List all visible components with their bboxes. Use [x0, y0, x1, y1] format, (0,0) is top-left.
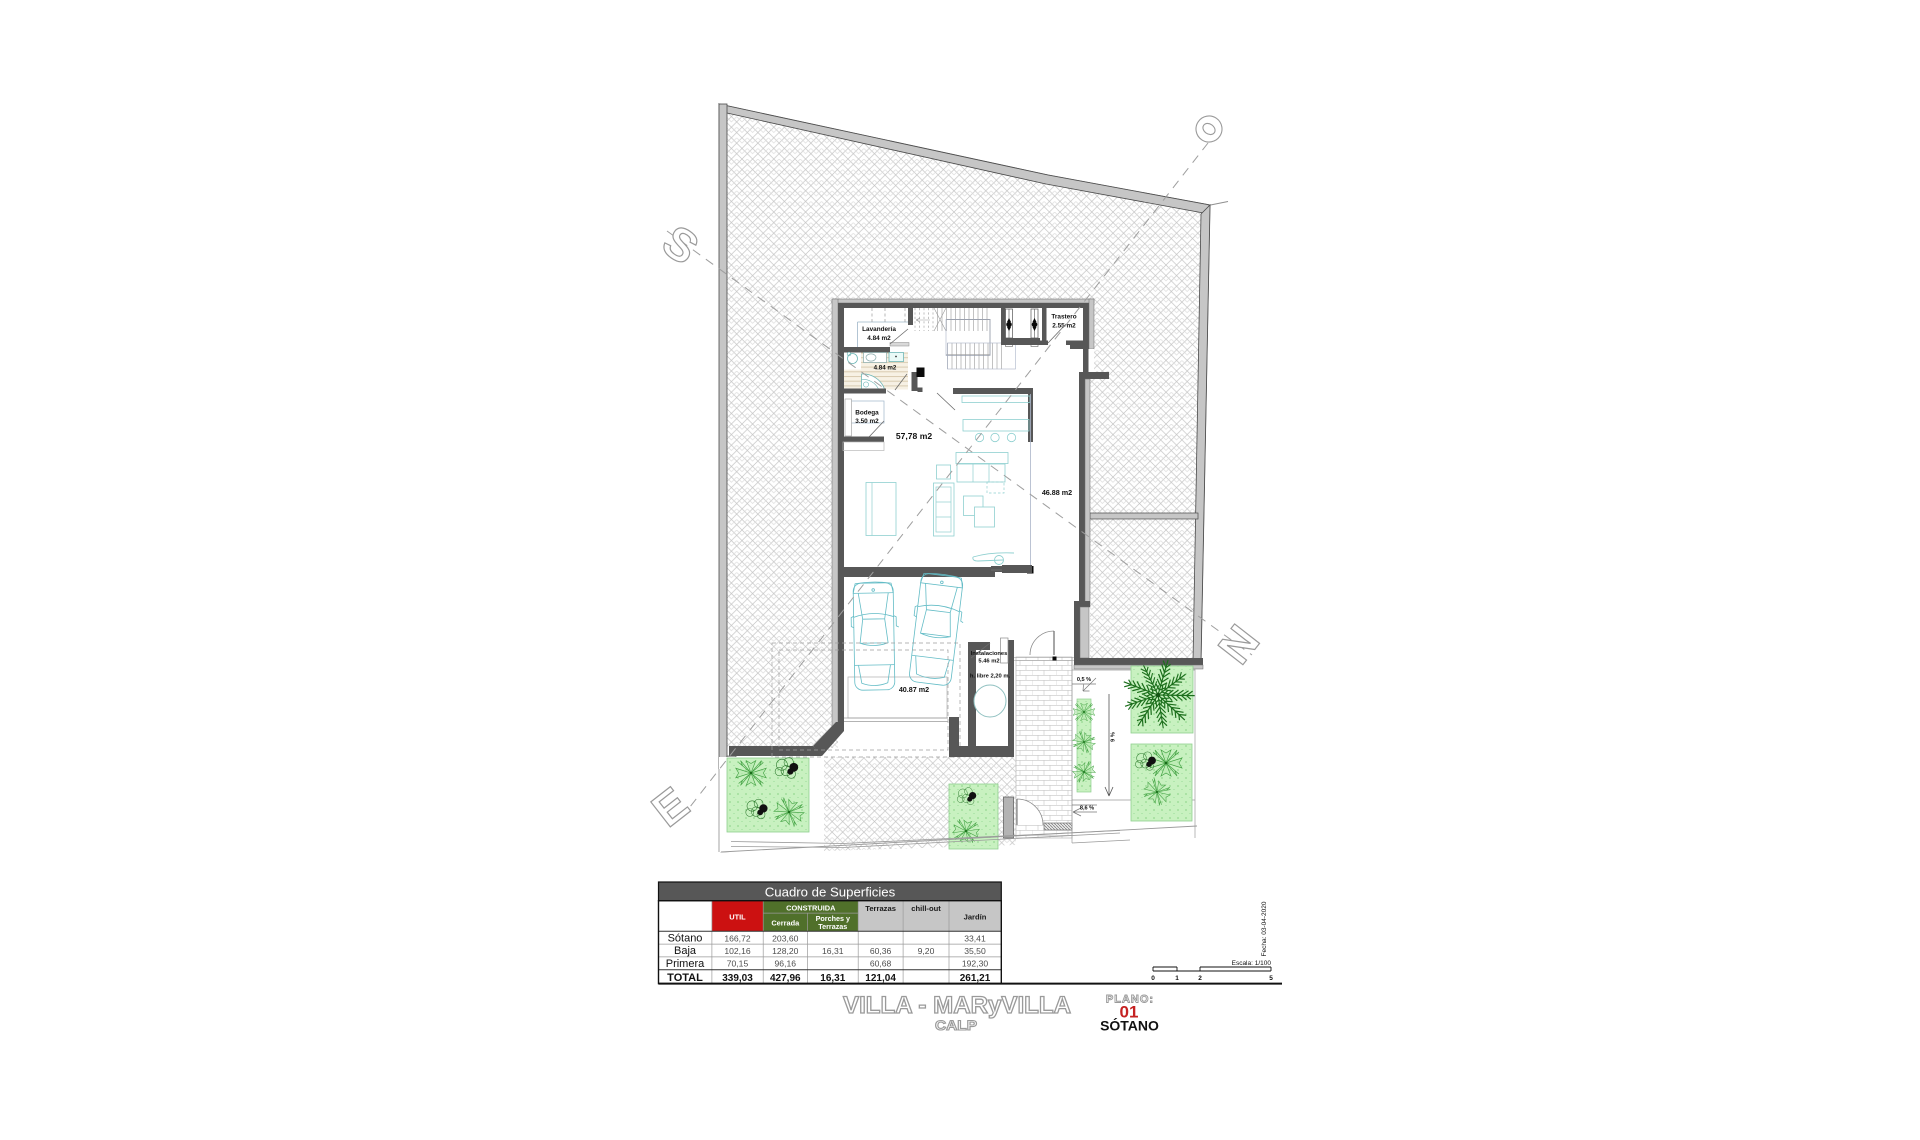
- svg-text:chill-out: chill-out: [911, 904, 941, 913]
- svg-text:46.88 m2: 46.88 m2: [1042, 488, 1072, 497]
- svg-text:33,41: 33,41: [964, 933, 986, 943]
- svg-text:121,04: 121,04: [865, 973, 896, 984]
- svg-text:h. libre 2,20 m.: h. libre 2,20 m.: [970, 674, 1011, 680]
- svg-text:Bodega: Bodega: [855, 410, 879, 417]
- svg-text:427,96: 427,96: [770, 973, 801, 984]
- svg-text:Trastero: Trastero: [1051, 314, 1076, 321]
- svg-text:203,60: 203,60: [772, 933, 799, 943]
- svg-text:Instalaciones: Instalaciones: [971, 651, 1008, 657]
- svg-text:0,5 %: 0,5 %: [1077, 677, 1091, 683]
- svg-text:9 %: 9 %: [1111, 732, 1117, 742]
- svg-text:192,30: 192,30: [962, 959, 989, 969]
- svg-text:70,15: 70,15: [727, 959, 749, 969]
- svg-text:Lavandería: Lavandería: [862, 326, 896, 333]
- svg-text:CALP: CALP: [935, 1017, 977, 1033]
- svg-text:UTIL: UTIL: [729, 913, 746, 922]
- svg-text:Cerrada: Cerrada: [771, 919, 800, 928]
- svg-text:Terrazas: Terrazas: [818, 922, 847, 931]
- svg-text:5.46 m2: 5.46 m2: [978, 659, 999, 665]
- svg-text:60,36: 60,36: [870, 946, 892, 956]
- svg-text:TOTAL: TOTAL: [667, 972, 703, 984]
- svg-text:VILLA - MARyVILLA: VILLA - MARyVILLA: [843, 992, 1071, 1019]
- svg-text:0: 0: [1151, 975, 1155, 982]
- svg-text:3.50 m2: 3.50 m2: [855, 418, 879, 425]
- svg-text:57,78 m2: 57,78 m2: [896, 431, 933, 441]
- svg-text:2: 2: [1198, 975, 1202, 982]
- svg-text:102,16: 102,16: [724, 946, 751, 956]
- svg-text:1: 1: [1175, 975, 1179, 982]
- svg-text:Cuadro de Superficies: Cuadro de Superficies: [765, 885, 896, 900]
- svg-text:40.87 m2: 40.87 m2: [899, 685, 929, 694]
- svg-text:CONSTRUIDA: CONSTRUIDA: [786, 904, 836, 913]
- svg-text:339,03: 339,03: [722, 973, 753, 984]
- svg-text:4.84 m2: 4.84 m2: [867, 335, 891, 342]
- svg-text:166,72: 166,72: [724, 933, 751, 943]
- svg-text:35,50: 35,50: [964, 946, 986, 956]
- svg-text:16,31: 16,31: [822, 946, 844, 956]
- svg-text:Jardín: Jardín: [964, 913, 987, 922]
- svg-text:4.84 m2: 4.84 m2: [874, 365, 897, 372]
- svg-text:16,31: 16,31: [820, 973, 845, 984]
- svg-text:128,20: 128,20: [772, 946, 799, 956]
- svg-text:SÓTANO: SÓTANO: [1100, 1017, 1159, 1034]
- svg-text:Fecha: 03-04-2020: Fecha: 03-04-2020: [1261, 901, 1268, 956]
- svg-text:Primera: Primera: [666, 958, 705, 970]
- svg-text:9,20: 9,20: [918, 946, 935, 956]
- svg-text:Baja: Baja: [674, 945, 697, 957]
- svg-text:60,68: 60,68: [870, 959, 892, 969]
- svg-text:261,21: 261,21: [960, 973, 991, 984]
- svg-text:Escala: 1/100: Escala: 1/100: [1232, 960, 1272, 967]
- svg-text:Terrazas: Terrazas: [865, 904, 896, 913]
- svg-text:5: 5: [1269, 975, 1273, 982]
- svg-text:8,6 %: 8,6 %: [1080, 806, 1094, 812]
- svg-text:Sótano: Sótano: [668, 933, 703, 945]
- svg-text:96,16: 96,16: [775, 959, 797, 969]
